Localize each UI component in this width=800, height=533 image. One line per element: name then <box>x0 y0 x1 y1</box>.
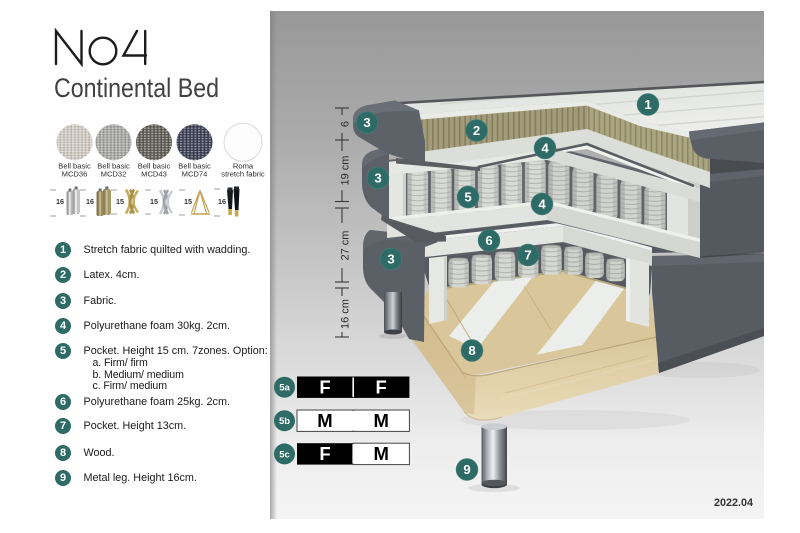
svg-text:1: 1 <box>644 97 651 112</box>
svg-text:6: 6 <box>485 233 492 248</box>
svg-text:M: M <box>373 443 388 464</box>
svg-text:5c: 5c <box>279 449 290 460</box>
svg-text:5: 5 <box>464 190 471 205</box>
svg-text:4: 4 <box>541 141 549 156</box>
svg-text:9: 9 <box>463 462 470 477</box>
svg-text:7: 7 <box>524 248 531 263</box>
svg-text:3: 3 <box>374 171 381 186</box>
svg-text:8: 8 <box>468 343 475 358</box>
svg-text:27 cm: 27 cm <box>339 231 351 261</box>
svg-text:F: F <box>319 377 330 398</box>
svg-text:16 cm: 16 cm <box>339 299 351 329</box>
svg-text:4: 4 <box>538 197 546 212</box>
svg-text:5a: 5a <box>279 383 290 394</box>
svg-text:F: F <box>319 443 330 464</box>
svg-text:19 cm: 19 cm <box>339 156 351 186</box>
svg-text:5b: 5b <box>279 416 290 427</box>
svg-text:F: F <box>376 377 387 398</box>
svg-text:M: M <box>317 410 332 431</box>
svg-text:3: 3 <box>363 115 370 130</box>
svg-text:M: M <box>373 410 388 431</box>
svg-text:6: 6 <box>339 121 351 127</box>
svg-text:2: 2 <box>473 123 480 138</box>
svg-text:3: 3 <box>387 252 394 267</box>
svg-text:2022.04: 2022.04 <box>714 497 753 509</box>
